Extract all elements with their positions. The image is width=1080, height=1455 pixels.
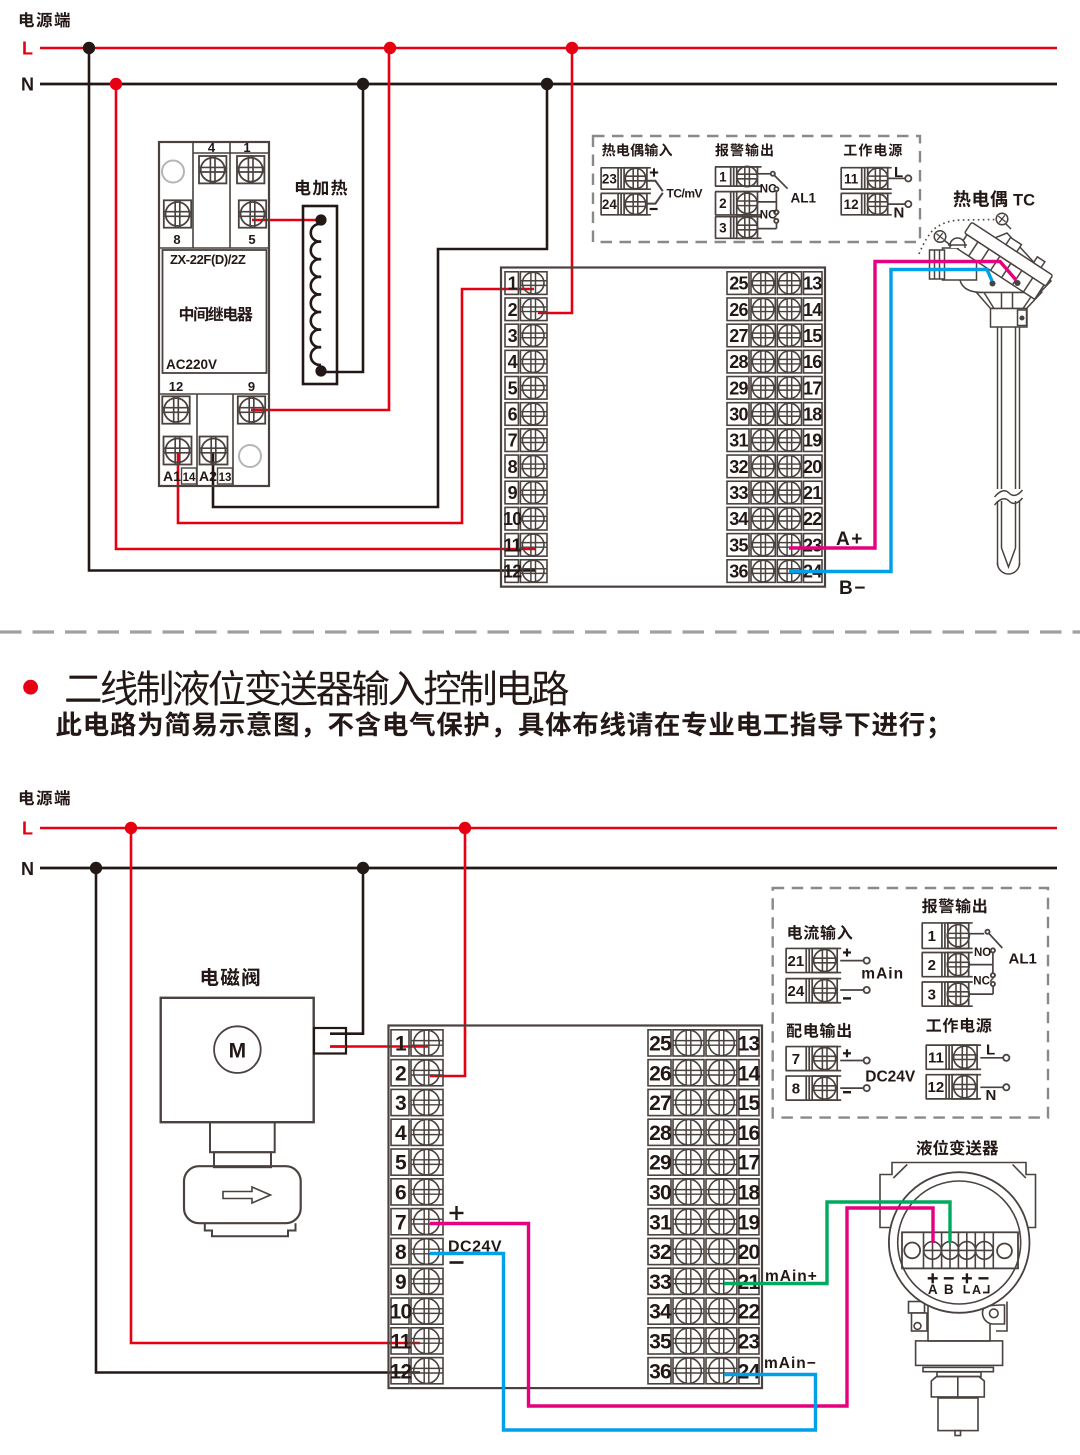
svg-text:9: 9: [395, 1271, 406, 1294]
svg-text:26: 26: [649, 1062, 671, 1085]
svg-text:8: 8: [508, 457, 518, 477]
svg-text:10: 10: [390, 1301, 412, 1324]
svg-text:21: 21: [803, 483, 822, 503]
svg-text:11: 11: [390, 1330, 412, 1353]
svg-text:L: L: [986, 1042, 995, 1059]
svg-text:5: 5: [395, 1152, 407, 1175]
svg-text:4: 4: [395, 1122, 407, 1145]
svg-text:25: 25: [729, 274, 748, 294]
svg-text:13: 13: [738, 1032, 760, 1055]
svg-text:ZX-22F(D)/2Z: ZX-22F(D)/2Z: [170, 252, 246, 267]
svg-text:A+: A+: [836, 529, 864, 550]
svg-text:mAin: mAin: [861, 966, 904, 983]
svg-text:N: N: [986, 1087, 997, 1104]
svg-text:21: 21: [788, 953, 805, 970]
svg-text:1: 1: [508, 274, 518, 294]
svg-text:1: 1: [395, 1032, 407, 1055]
svg-text:A2: A2: [199, 468, 217, 484]
svg-text:20: 20: [803, 457, 822, 477]
svg-text:32: 32: [729, 457, 748, 477]
svg-text:9: 9: [248, 379, 255, 394]
svg-text:2: 2: [928, 957, 936, 974]
svg-text:14: 14: [738, 1062, 761, 1085]
svg-text:19: 19: [738, 1211, 760, 1234]
svg-text:16: 16: [738, 1122, 760, 1145]
svg-text:2: 2: [395, 1062, 406, 1085]
svg-text:34: 34: [729, 509, 748, 529]
svg-text:N: N: [21, 75, 34, 95]
svg-text:13: 13: [803, 274, 822, 294]
svg-text:3: 3: [719, 220, 727, 235]
svg-text:8: 8: [792, 1081, 800, 1098]
svg-text:33: 33: [649, 1271, 671, 1294]
svg-text:28: 28: [649, 1122, 672, 1145]
svg-text:A: A: [928, 1282, 938, 1297]
svg-text:31: 31: [649, 1211, 672, 1234]
svg-text:12: 12: [169, 379, 183, 394]
svg-text:N: N: [21, 859, 34, 879]
svg-text:4: 4: [508, 352, 518, 372]
svg-text:5: 5: [248, 232, 255, 247]
svg-text:16: 16: [803, 352, 822, 372]
svg-text:28: 28: [729, 352, 748, 372]
svg-text:L: L: [22, 39, 33, 59]
svg-text:26: 26: [729, 300, 748, 320]
svg-text:17: 17: [803, 378, 822, 398]
svg-text:12: 12: [503, 562, 522, 582]
svg-text:33: 33: [729, 483, 748, 503]
svg-text:23: 23: [738, 1330, 760, 1353]
svg-text:11: 11: [844, 171, 859, 186]
svg-text:23: 23: [602, 171, 618, 186]
svg-text:B−: B−: [839, 578, 867, 599]
svg-text:M: M: [229, 1040, 247, 1063]
svg-text:8: 8: [173, 232, 180, 247]
svg-text:25: 25: [649, 1032, 672, 1055]
svg-text:1: 1: [719, 169, 727, 184]
svg-text:15: 15: [738, 1092, 761, 1115]
svg-text:N: N: [894, 205, 905, 222]
svg-text:19: 19: [803, 431, 822, 451]
svg-text:30: 30: [649, 1181, 671, 1204]
svg-text:AL1: AL1: [791, 191, 817, 206]
svg-text:12: 12: [928, 1079, 945, 1096]
svg-text:12: 12: [390, 1360, 412, 1383]
svg-text:2: 2: [719, 196, 727, 211]
svg-text:23: 23: [803, 535, 822, 555]
svg-text:35: 35: [729, 535, 748, 555]
svg-text:11: 11: [928, 1050, 944, 1067]
svg-text:5: 5: [508, 378, 518, 398]
svg-text:7: 7: [792, 1051, 800, 1068]
svg-text:15: 15: [803, 326, 822, 346]
svg-text:24: 24: [738, 1360, 761, 1383]
svg-text:10: 10: [503, 509, 522, 529]
svg-text:mAin+: mAin+: [765, 1268, 818, 1285]
svg-text:AC220V: AC220V: [166, 357, 217, 372]
svg-text:7: 7: [395, 1211, 406, 1234]
svg-text:B: B: [944, 1282, 954, 1297]
svg-text:7: 7: [508, 431, 518, 451]
svg-text:DC24V: DC24V: [865, 1069, 916, 1086]
svg-text:11: 11: [503, 535, 521, 555]
svg-text:8: 8: [395, 1241, 407, 1264]
svg-text:12: 12: [844, 197, 859, 212]
svg-text:TC/mV: TC/mV: [667, 187, 703, 201]
svg-text:30: 30: [729, 404, 748, 424]
svg-text:9: 9: [508, 483, 518, 503]
svg-text:NO: NO: [974, 947, 991, 959]
svg-text:14: 14: [803, 300, 822, 320]
svg-text:3: 3: [395, 1092, 406, 1115]
svg-text:27: 27: [729, 326, 748, 346]
svg-text:mAin−: mAin−: [764, 1355, 817, 1372]
svg-text:22: 22: [738, 1301, 760, 1324]
svg-text:13: 13: [219, 472, 232, 484]
svg-text:4: 4: [208, 140, 216, 155]
svg-text:A1: A1: [163, 468, 181, 484]
svg-text:31: 31: [729, 431, 748, 451]
svg-text:20: 20: [738, 1241, 760, 1264]
svg-text:L: L: [894, 164, 903, 181]
svg-text:36: 36: [729, 562, 748, 582]
svg-text:17: 17: [738, 1152, 760, 1175]
svg-text:18: 18: [803, 404, 822, 424]
svg-text:6: 6: [508, 404, 518, 424]
svg-text:6: 6: [395, 1181, 406, 1204]
svg-text:27: 27: [649, 1092, 671, 1115]
svg-text:18: 18: [738, 1181, 761, 1204]
svg-text:35: 35: [649, 1330, 672, 1353]
svg-text:24: 24: [602, 197, 618, 212]
svg-text:L: L: [22, 819, 33, 839]
svg-text:22: 22: [803, 509, 822, 529]
svg-text:14: 14: [183, 472, 196, 484]
svg-text:3: 3: [928, 987, 936, 1004]
svg-text:NC: NC: [973, 976, 990, 988]
svg-text:TC: TC: [1013, 192, 1035, 210]
svg-text:2: 2: [508, 300, 518, 320]
svg-text:A: A: [972, 1283, 981, 1297]
svg-text:1: 1: [928, 928, 936, 945]
svg-text:AL1: AL1: [1009, 951, 1037, 968]
svg-text:34: 34: [649, 1301, 672, 1324]
svg-text:32: 32: [649, 1241, 671, 1264]
svg-text:24: 24: [788, 983, 805, 1000]
svg-text:36: 36: [649, 1360, 671, 1383]
svg-text:1: 1: [243, 140, 250, 155]
svg-text:3: 3: [508, 326, 518, 346]
svg-text:29: 29: [729, 378, 748, 398]
svg-text:29: 29: [649, 1152, 671, 1175]
